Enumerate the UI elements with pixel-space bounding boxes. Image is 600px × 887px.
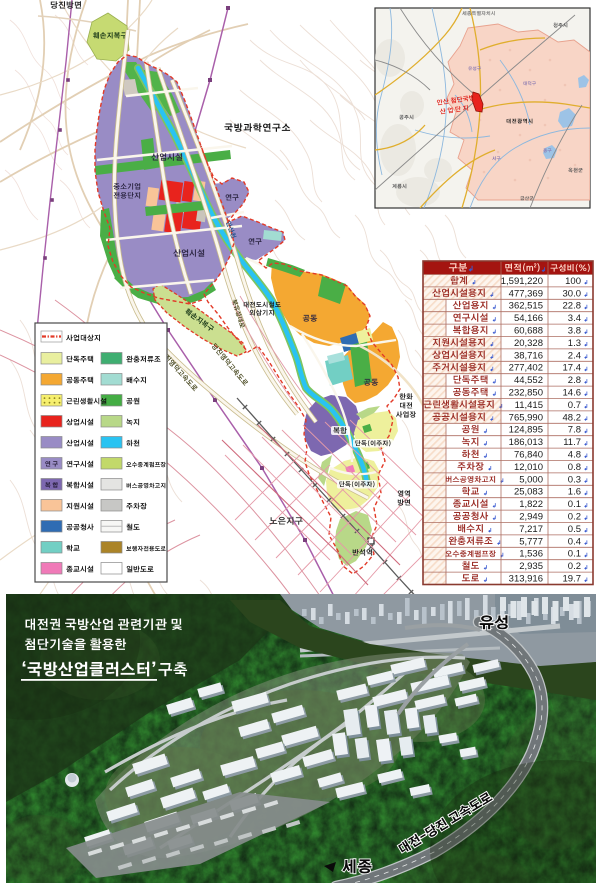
svg-text:44,552: 44,552	[514, 375, 543, 386]
svg-text:5,000: 5,000	[519, 474, 543, 485]
svg-text:11,415: 11,415	[515, 400, 543, 411]
svg-text:38,716: 38,716	[514, 350, 543, 361]
svg-text:17.4: 17.4	[563, 363, 582, 374]
svg-text:0.2: 0.2	[568, 561, 581, 572]
svg-text:60,688: 60,688	[514, 326, 543, 337]
svg-text:1,822: 1,822	[519, 499, 543, 510]
svg-text:3.4: 3.4	[568, 313, 581, 324]
svg-text:362,515: 362,515	[509, 301, 543, 312]
svg-text:0.7: 0.7	[568, 400, 581, 411]
svg-text:1,536: 1,536	[519, 549, 543, 560]
svg-text:1,591,220: 1,591,220	[501, 276, 543, 287]
svg-text:0.1: 0.1	[568, 499, 581, 510]
svg-text:0.8: 0.8	[568, 462, 581, 473]
svg-text:1.3: 1.3	[568, 338, 581, 349]
svg-text:20,328: 20,328	[514, 338, 543, 349]
svg-text:7,217: 7,217	[519, 524, 543, 535]
svg-text:277,402: 277,402	[509, 363, 543, 374]
svg-text:22.8: 22.8	[563, 301, 582, 312]
svg-text:100: 100	[565, 276, 581, 287]
svg-text:0.1: 0.1	[568, 549, 581, 560]
svg-text:0.2: 0.2	[568, 512, 581, 523]
svg-text:76,840: 76,840	[514, 450, 543, 461]
svg-text:313,916: 313,916	[509, 574, 543, 585]
svg-text:2,935: 2,935	[519, 561, 543, 572]
svg-text:4.8: 4.8	[568, 450, 581, 461]
svg-text:0.3: 0.3	[568, 474, 581, 485]
svg-text:14.6: 14.6	[563, 388, 582, 399]
svg-text:19.7: 19.7	[563, 574, 582, 585]
svg-text:2.4: 2.4	[568, 350, 581, 361]
svg-text:25,083: 25,083	[514, 487, 543, 498]
svg-text:3.8: 3.8	[568, 326, 581, 337]
svg-text:54,166: 54,166	[514, 313, 543, 324]
svg-text:5,777: 5,777	[519, 536, 543, 547]
svg-text:477,369: 477,369	[509, 288, 543, 299]
svg-text:48.2: 48.2	[563, 412, 582, 423]
svg-text:12,010: 12,010	[514, 462, 543, 473]
svg-text:0.5: 0.5	[568, 524, 581, 535]
svg-text:232,850: 232,850	[509, 388, 543, 399]
svg-text:0.4: 0.4	[568, 536, 581, 547]
svg-text:11.7: 11.7	[563, 437, 581, 448]
svg-text:30.0: 30.0	[563, 288, 582, 299]
svg-text:124,895: 124,895	[509, 425, 543, 436]
svg-text:765,990: 765,990	[509, 412, 543, 423]
svg-text:7.8: 7.8	[568, 425, 581, 436]
svg-text:1.6: 1.6	[568, 487, 581, 498]
svg-text:2,949: 2,949	[519, 512, 543, 523]
svg-text:2.8: 2.8	[568, 375, 581, 386]
svg-text:186,013: 186,013	[509, 437, 543, 448]
